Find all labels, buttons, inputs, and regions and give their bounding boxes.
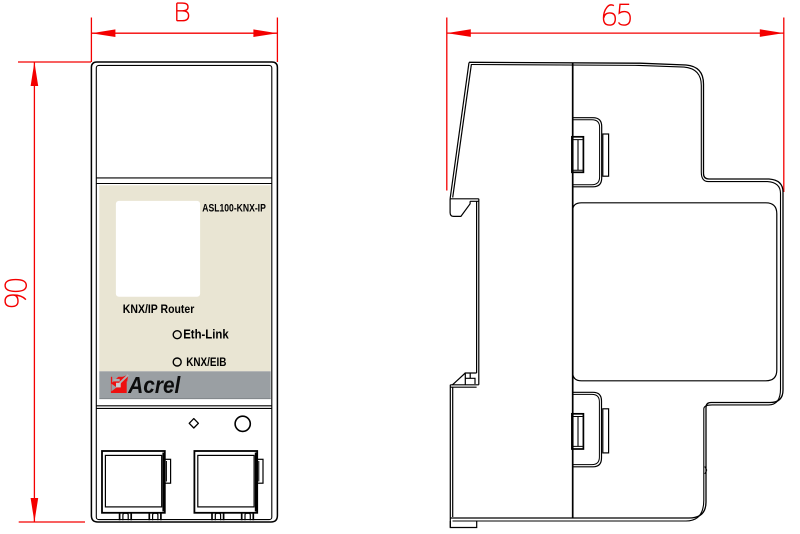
svg-text:KNX/IP Router: KNX/IP Router: [123, 304, 195, 316]
svg-text:Acrel: Acrel: [127, 372, 180, 398]
svg-text:ASL100-KNX-IP: ASL100-KNX-IP: [202, 202, 265, 214]
svg-text:Eth-Link: Eth-Link: [183, 328, 229, 342]
svg-text:KNX/EIB: KNX/EIB: [186, 355, 226, 369]
